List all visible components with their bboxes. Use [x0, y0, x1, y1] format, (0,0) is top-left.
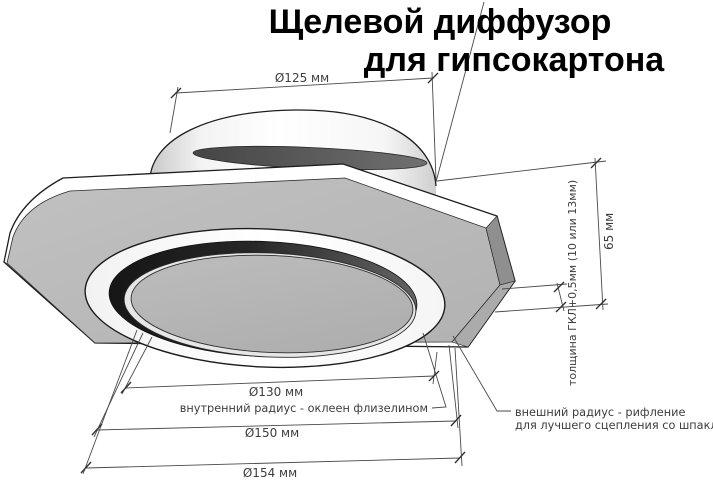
dim-label-height: 65 мм [602, 213, 616, 250]
note-inner-radius: внутренний радиус - оклеен флизелином [180, 402, 428, 415]
dim-label-middle-diameter: Ø150 мм [245, 426, 299, 440]
dim-label-panel-thickness: толщина ГКЛ+0,5мм (10 или 13мм) [566, 180, 579, 386]
dim-label-inner-diameter: Ø130 мм [249, 385, 303, 399]
diagram-canvas: Щелевой диффузор для гипсокартона Ø125 м… [0, 0, 713, 500]
note-outer-radius-line2: для лучшего сцепления со шпаклёвкой [515, 419, 713, 432]
dim-label-outer-diameter: Ø154 мм [243, 466, 297, 480]
diagram-title-line2: для гипсокартона [364, 41, 665, 79]
note-outer-radius-line1: внешний радиус - рифление [515, 406, 685, 419]
diagram-title-line1: Щелевой диффузор [269, 3, 612, 41]
technical-drawing: Щелевой диффузор для гипсокартона Ø125 м… [0, 0, 713, 500]
dim-label-duct-diameter: Ø125 мм [275, 71, 329, 85]
